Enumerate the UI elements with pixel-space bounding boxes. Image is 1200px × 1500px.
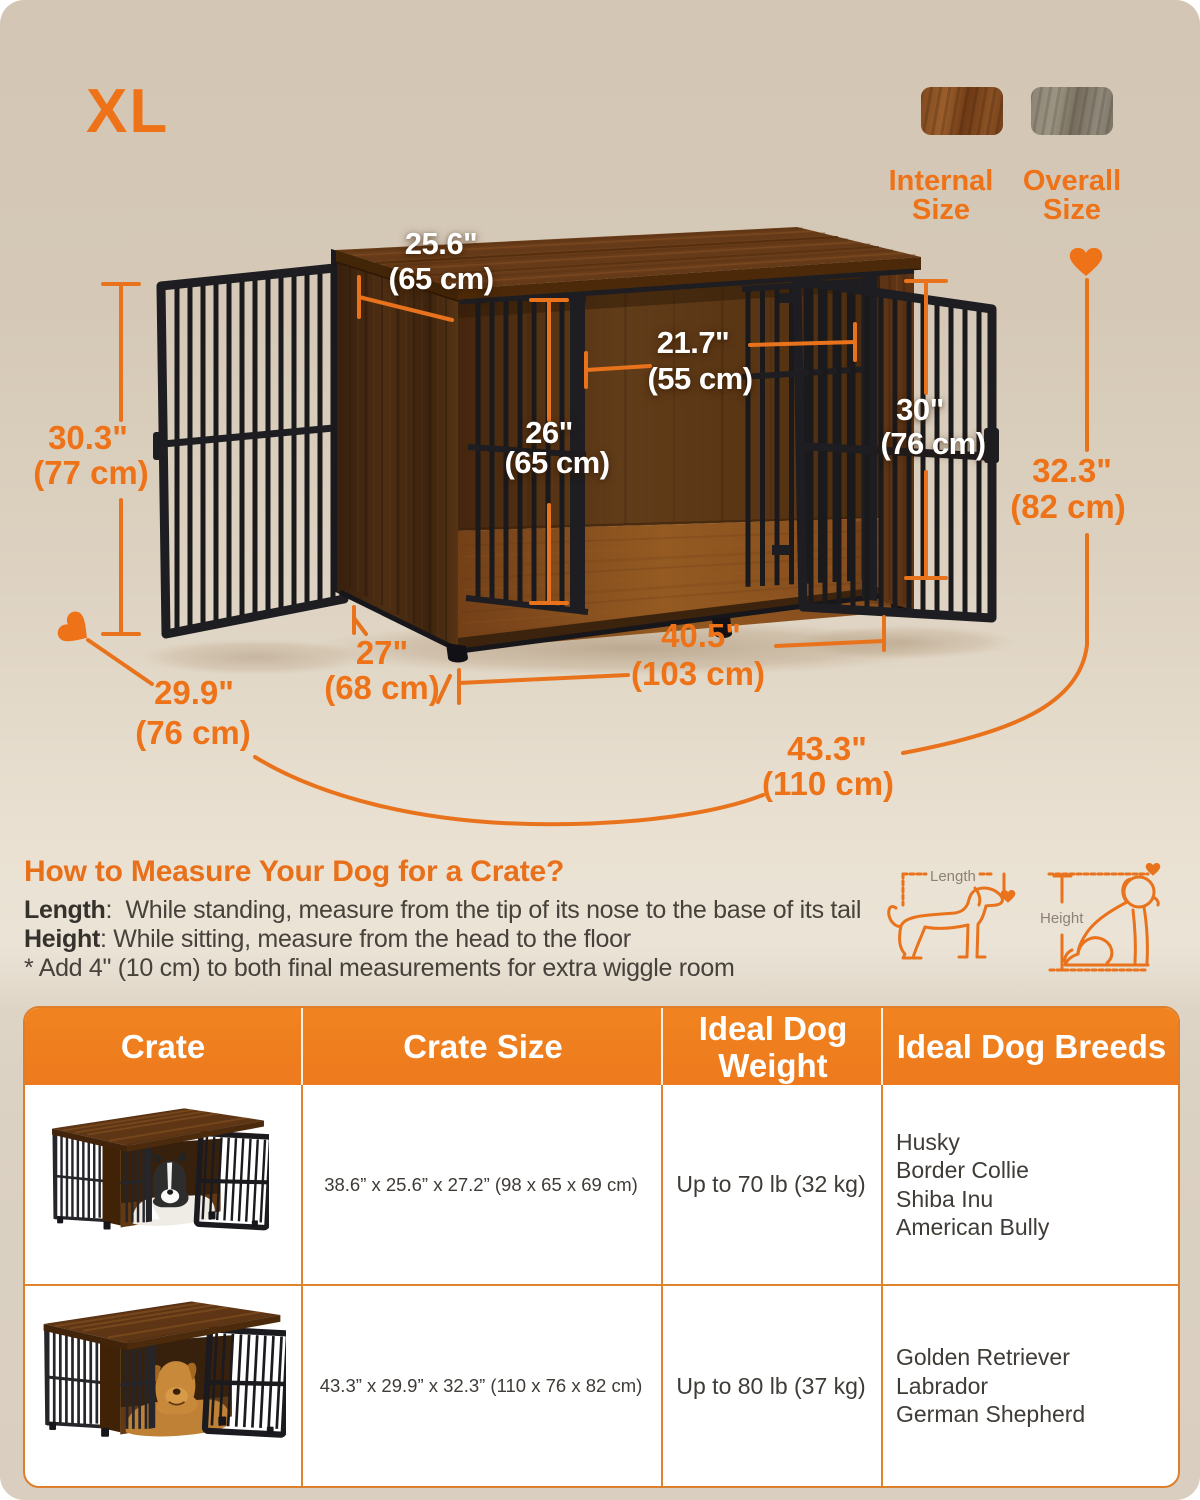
svg-text:Height: Height [1040,910,1084,927]
svg-text:Length: Length [930,868,976,885]
